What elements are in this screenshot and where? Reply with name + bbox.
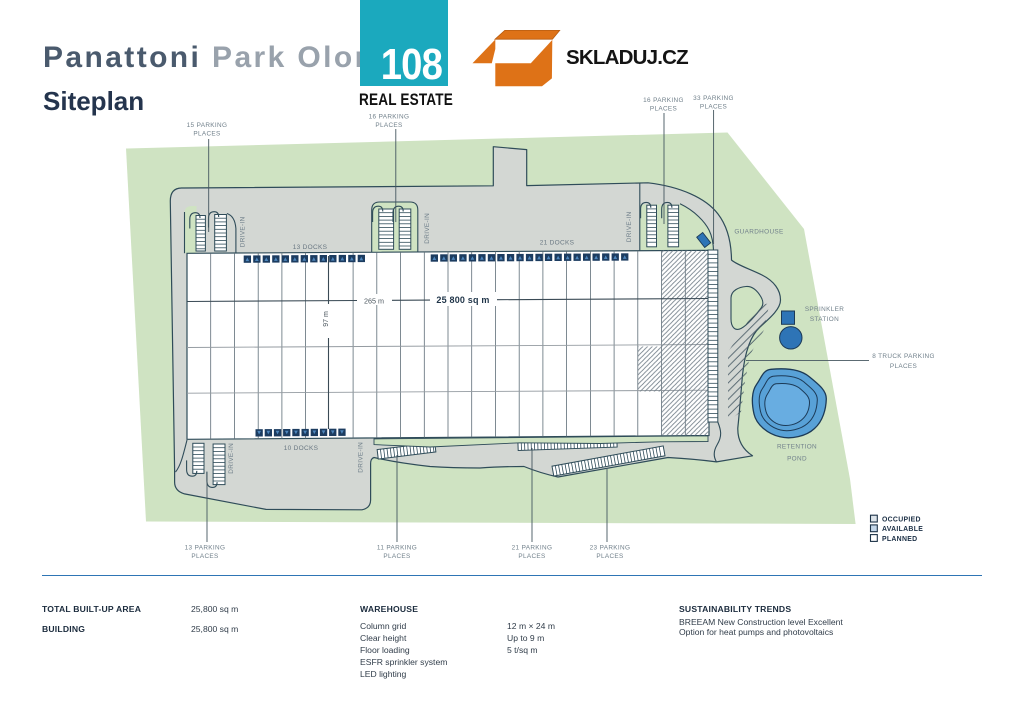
svg-text:STATION: STATION [810, 316, 839, 323]
svg-text:97 m: 97 m [323, 311, 330, 327]
svg-text:PLACES: PLACES [375, 122, 402, 129]
svg-text:10 DOCKS: 10 DOCKS [284, 445, 319, 452]
svg-text:PLACES: PLACES [650, 106, 677, 113]
svg-text:PLACES: PLACES [191, 553, 218, 560]
svg-text:DRIVE-IN: DRIVE-IN [424, 213, 431, 244]
svg-text:13 DOCKS: 13 DOCKS [293, 244, 328, 251]
svg-text:DRIVE-IN: DRIVE-IN [357, 442, 364, 473]
svg-text:15 PARKING: 15 PARKING [187, 122, 228, 129]
svg-text:PLACES: PLACES [193, 131, 220, 138]
svg-text:265 m: 265 m [364, 296, 384, 305]
svg-text:PLACES: PLACES [518, 553, 545, 560]
svg-text:POND: POND [787, 456, 807, 463]
svg-text:21 DOCKS: 21 DOCKS [540, 240, 575, 247]
svg-text:SPRINKLER: SPRINKLER [805, 306, 844, 313]
svg-text:AVAILABLE: AVAILABLE [882, 526, 923, 533]
svg-text:PLACES: PLACES [890, 363, 917, 370]
svg-text:PLANNED: PLANNED [882, 536, 917, 543]
svg-text:11 PARKING: 11 PARKING [377, 545, 417, 552]
svg-text:DRIVE-IN: DRIVE-IN [228, 443, 235, 474]
svg-text:33 PARKING: 33 PARKING [693, 95, 734, 102]
svg-text:DRIVE-IN: DRIVE-IN [239, 216, 246, 247]
svg-text:16 PARKING: 16 PARKING [643, 97, 684, 104]
svg-text:GUARDHOUSE: GUARDHOUSE [734, 229, 783, 236]
svg-text:8 TRUCK PARKING: 8 TRUCK PARKING [872, 353, 935, 360]
svg-text:21 PARKING: 21 PARKING [512, 545, 553, 552]
svg-text:OCCUPIED: OCCUPIED [882, 516, 921, 523]
svg-text:DRIVE-IN: DRIVE-IN [626, 211, 633, 242]
svg-text:23 PARKING: 23 PARKING [590, 545, 631, 552]
svg-text:13 PARKING: 13 PARKING [185, 545, 226, 552]
svg-text:PLACES: PLACES [700, 104, 727, 111]
svg-text:25 800 sq m: 25 800 sq m [436, 295, 489, 305]
svg-text:PLACES: PLACES [383, 553, 410, 560]
svg-text:RETENTION: RETENTION [777, 444, 817, 451]
svg-text:PLACES: PLACES [596, 553, 623, 560]
svg-text:16 PARKING: 16 PARKING [369, 114, 410, 121]
